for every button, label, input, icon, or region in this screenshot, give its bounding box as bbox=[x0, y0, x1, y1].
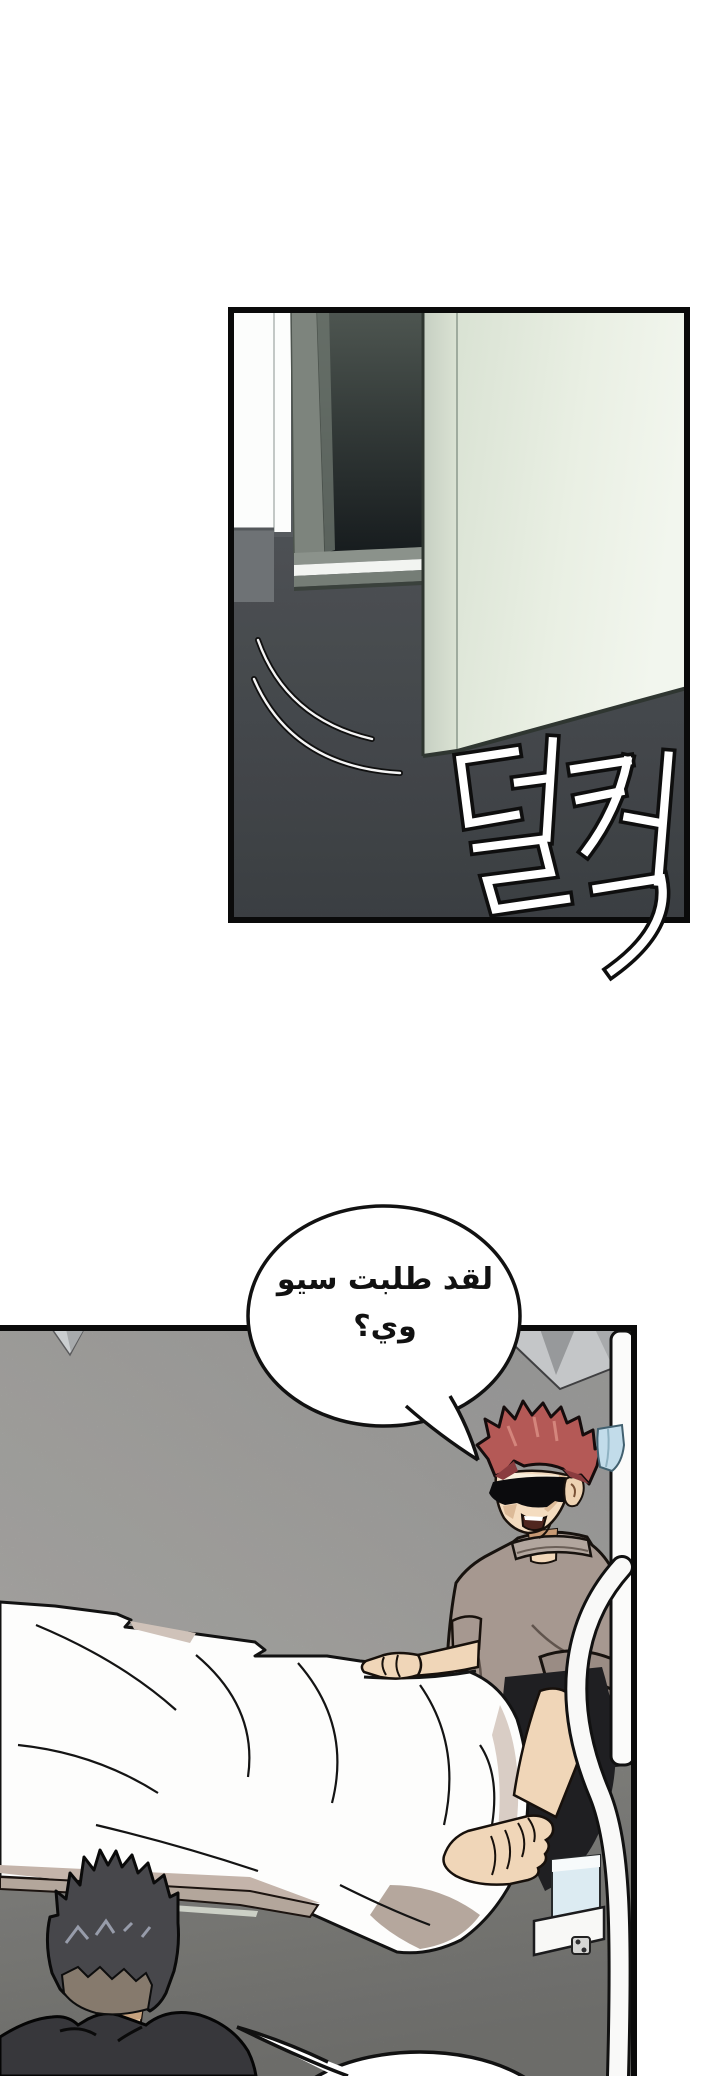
open-door bbox=[423, 310, 687, 756]
bottom-speech-bubble bbox=[230, 2018, 560, 2076]
panel-border-right bbox=[631, 1325, 637, 2076]
sfx-strokes bbox=[438, 728, 694, 984]
speech-line-1: لقد طلبت سيو bbox=[240, 1256, 530, 1303]
sfx-deolkeok: 덜컥 bbox=[438, 728, 694, 984]
speech-bubble: لقد طلبت سيو وي؟ bbox=[240, 1198, 532, 1474]
speech-line-2: وي؟ bbox=[240, 1303, 530, 1350]
fg-jacket bbox=[0, 2013, 256, 2076]
dark-doorway bbox=[317, 310, 423, 553]
comic-page: 덜컥 bbox=[0, 0, 720, 2076]
door-sill bbox=[294, 547, 423, 591]
speech-text: لقد طلبت سيو وي؟ bbox=[240, 1256, 530, 1350]
bottom-bubble-shape bbox=[230, 2018, 560, 2076]
